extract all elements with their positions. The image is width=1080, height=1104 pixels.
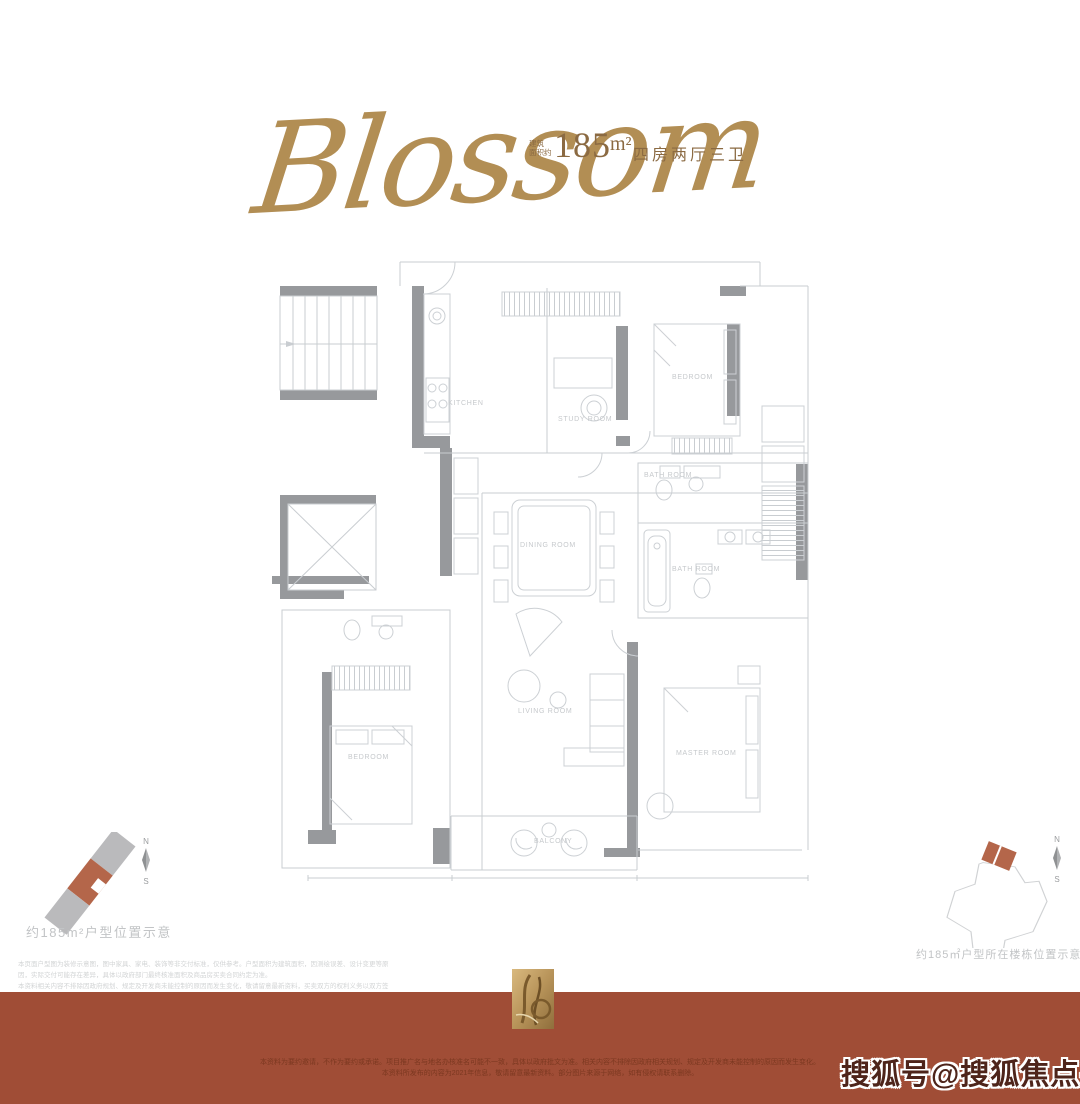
right-diagram-caption: 约185㎡户型所在楼栋位置示意图 — [916, 946, 1080, 962]
stairs-arrow — [286, 341, 296, 347]
building-location-diagram: N S — [925, 828, 1080, 948]
disclaimer-line1: 本页面户型图为装修示意图，图中家具、家电、装饰等非交付标准，仅供参考。户型面积为… — [18, 959, 390, 981]
room-label: BEDROOM — [672, 374, 713, 381]
building-bar — [44, 832, 135, 935]
floor-plan-svg — [272, 258, 812, 883]
floor-plan: KITCHEN STUDY ROOM BEDROOM BATH ROOM DIN… — [272, 258, 812, 883]
layout-text: 四房两厅三卫 — [633, 141, 747, 165]
room-label: BALCONY — [534, 838, 572, 845]
compass-north-label: N — [143, 837, 149, 846]
area-value: 185 — [554, 124, 611, 166]
compass-north-label: N — [1054, 835, 1060, 844]
room-label: BEDROOM — [348, 754, 389, 761]
left-diagram-caption: 约185m²户型位置示意 — [26, 922, 172, 941]
area-unit: m² — [610, 133, 632, 156]
room-label: BATH ROOM — [672, 566, 720, 573]
sohu-watermark: 搜狐号@搜狐焦点宿州站 — [841, 1051, 1080, 1093]
compass-south-label: S — [143, 877, 148, 886]
room-label: KITCHEN — [448, 400, 484, 407]
compass-icon: N S — [1053, 835, 1061, 884]
room-label: LIVING ROOM — [518, 708, 572, 715]
room-label: MASTER ROOM — [676, 750, 737, 757]
compass-icon: N S — [142, 837, 150, 886]
room-label: BATH ROOM — [644, 472, 692, 479]
room-label: STUDY ROOM — [558, 416, 612, 423]
walls-group — [272, 286, 808, 864]
brand-emblem-icon — [512, 969, 554, 1029]
room-label: DINING ROOM — [520, 542, 576, 549]
site-boundary — [947, 863, 1047, 948]
poster-page: Blossom 建筑 面积约 185 m² 四房两厅三卫 — [0, 0, 1080, 1104]
compass-south-label: S — [1054, 875, 1059, 884]
